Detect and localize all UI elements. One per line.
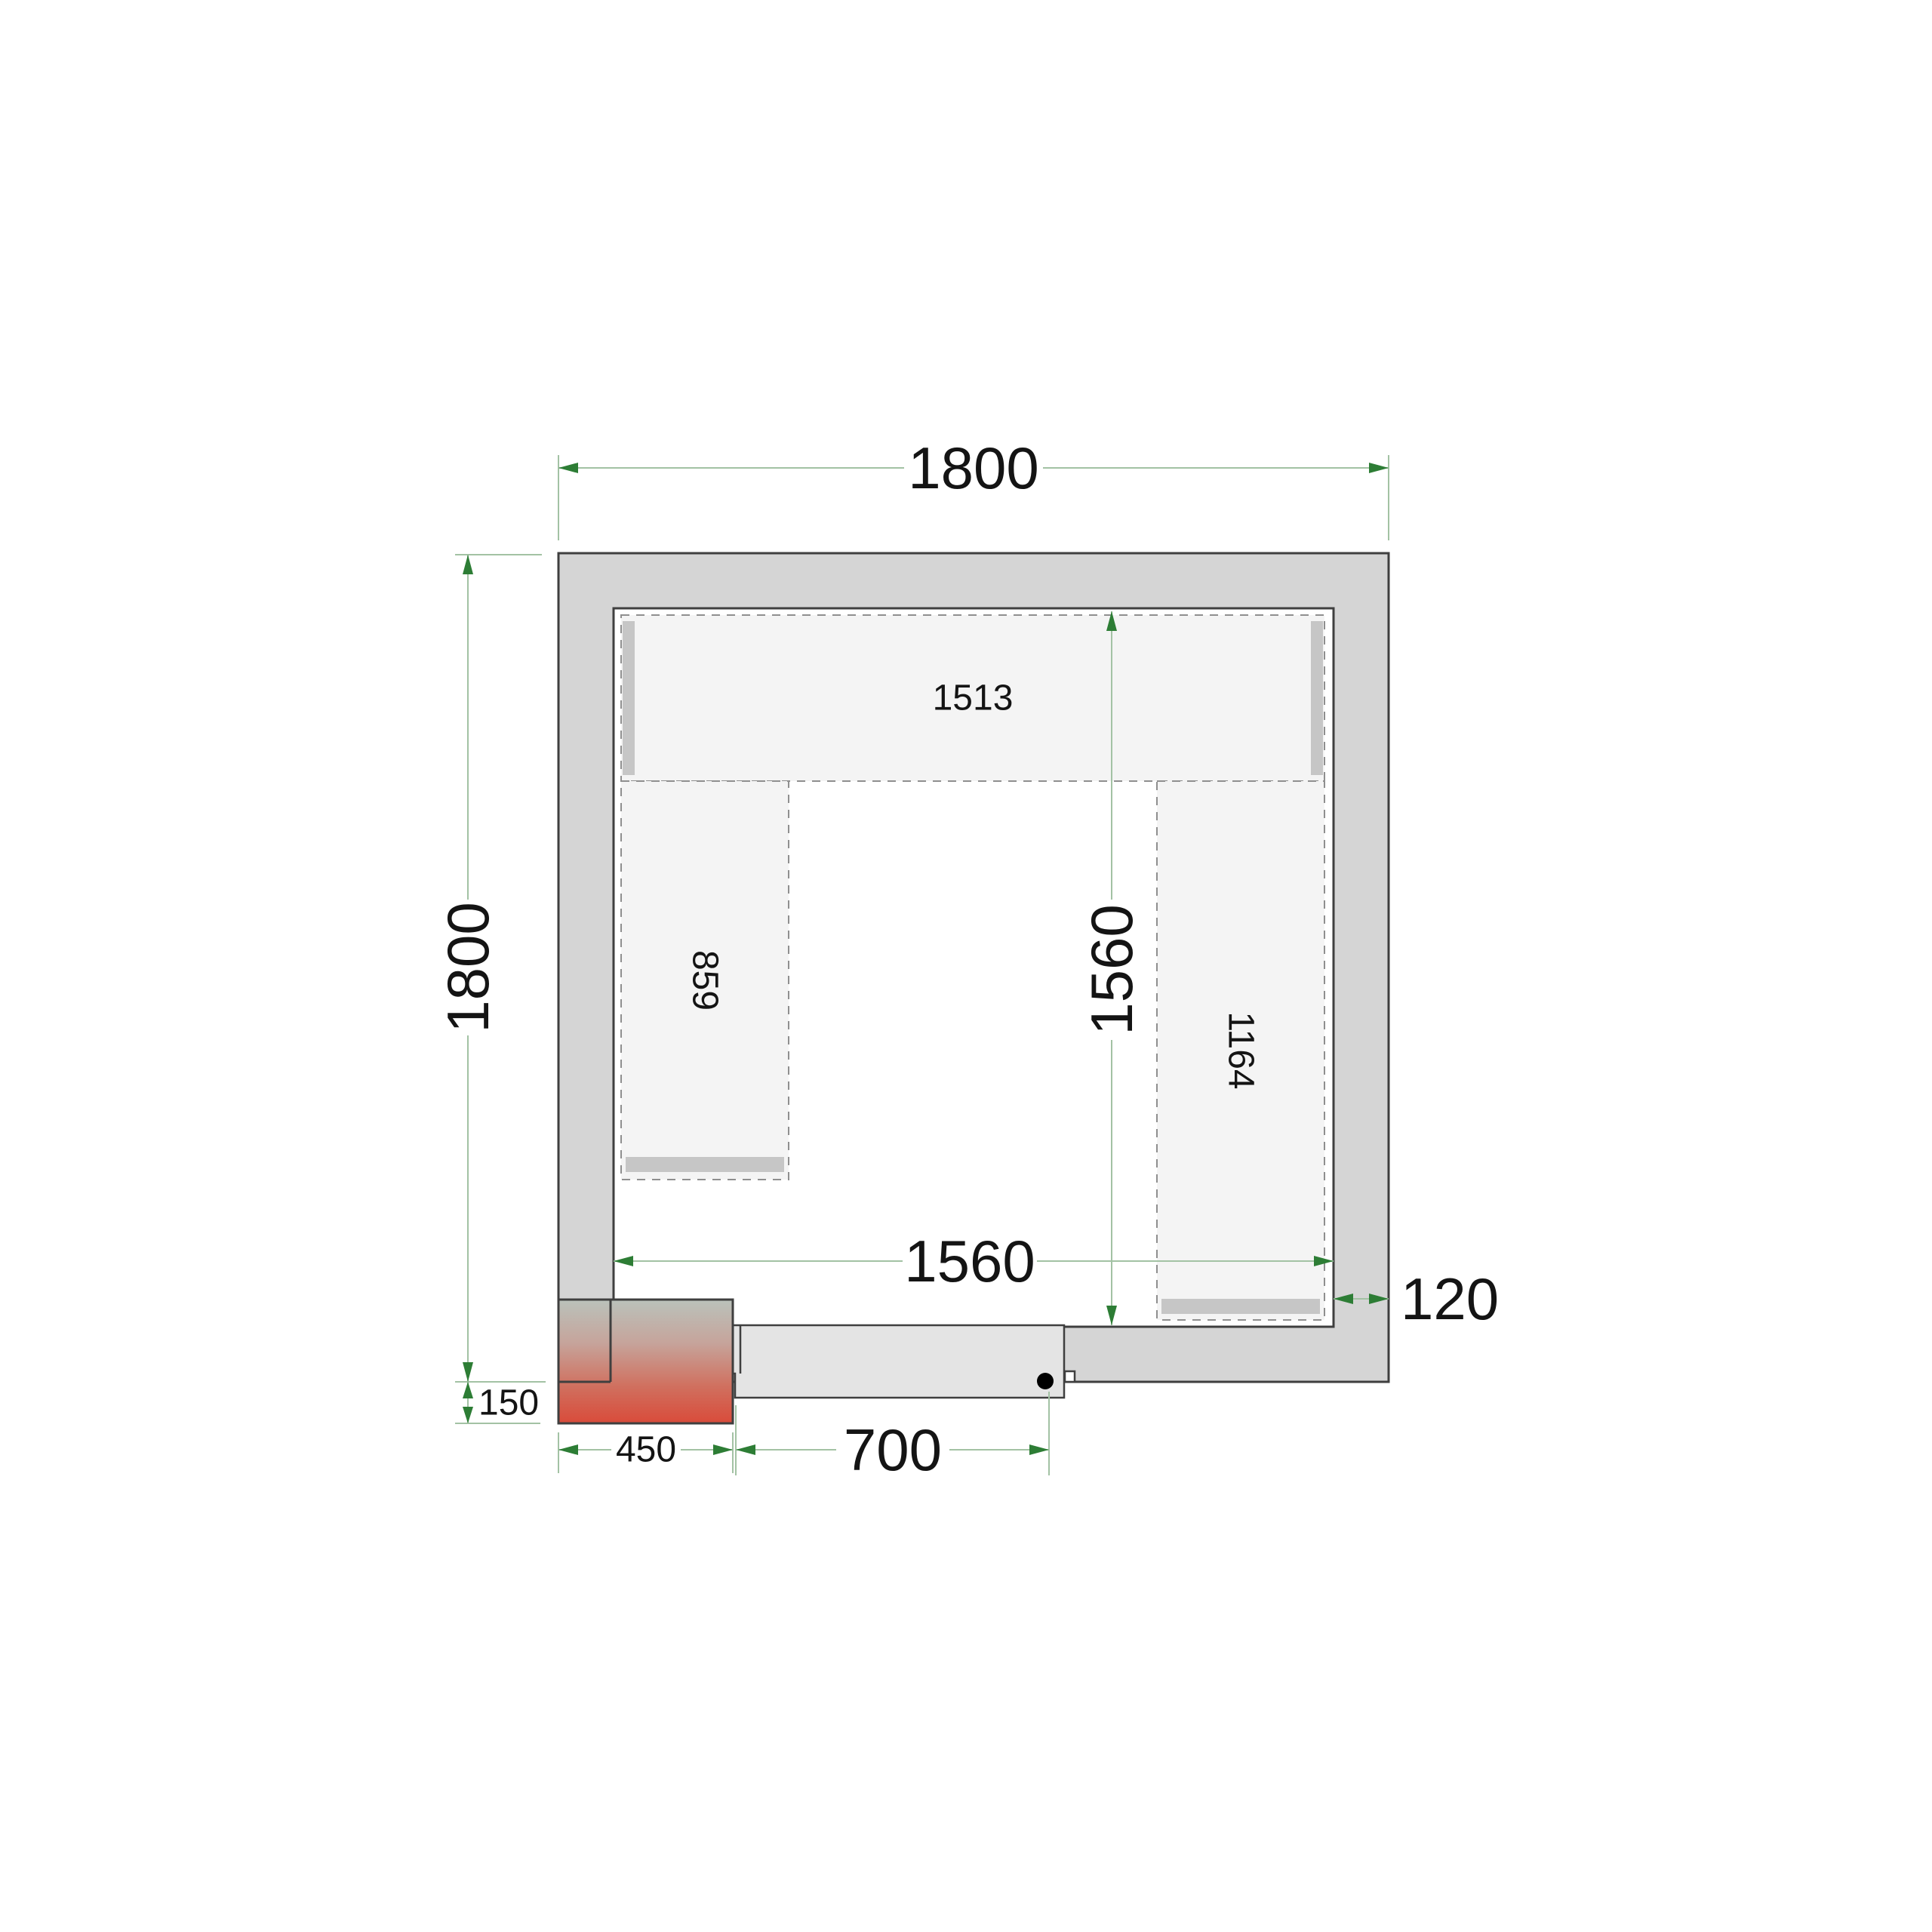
door-frame-notch (1065, 1371, 1075, 1382)
arrow-outer-width-right (1369, 463, 1389, 473)
dim-inner-width-label: 1560 (904, 1228, 1035, 1294)
dim-outer-width-label: 1800 (908, 435, 1039, 501)
floor-plan-canvas: 1513 859 1164 (0, 0, 1932, 1932)
shelf-top-length-label: 1513 (933, 678, 1014, 718)
arrow-outer-depth-top (463, 555, 473, 574)
cooling-unit-box (558, 1300, 733, 1423)
cooling-unit (558, 1300, 733, 1423)
dim-wall-thickness-label: 120 (1401, 1266, 1499, 1332)
shelf-left-support (626, 1157, 784, 1172)
door-leaf (731, 1325, 1064, 1398)
dim-door-opening-label: 700 (844, 1417, 942, 1483)
dim-unit-offset-label: 150 (478, 1383, 539, 1423)
arrow-unit-width-right (713, 1444, 733, 1455)
shelf-right-length-label: 1164 (1221, 1011, 1261, 1089)
shelf-top-right-support (1311, 621, 1323, 775)
arrow-unit-offset-top (463, 1382, 473, 1398)
shelf-left-length-label: 859 (685, 950, 725, 1011)
arrow-outer-width-left (558, 463, 578, 473)
arrow-unit-width-left (558, 1444, 578, 1455)
dim-outer-depth-label: 1800 (435, 902, 501, 1033)
dim-unit-width-label: 450 (616, 1430, 676, 1470)
shelf-top-left-support (623, 621, 635, 775)
cold-room-plan-drawing: 1513 859 1164 (0, 0, 1932, 1932)
door-assembly (731, 1325, 1075, 1398)
door-hinge-dot (1037, 1373, 1054, 1389)
arrow-outer-depth-bottom (463, 1362, 473, 1382)
arrow-door-right (1029, 1444, 1049, 1455)
arrow-door-left (736, 1444, 755, 1455)
arrow-unit-offset-bottom (463, 1407, 473, 1423)
dim-inner-depth-label: 1560 (1078, 904, 1145, 1035)
shelf-right-support (1161, 1299, 1320, 1314)
